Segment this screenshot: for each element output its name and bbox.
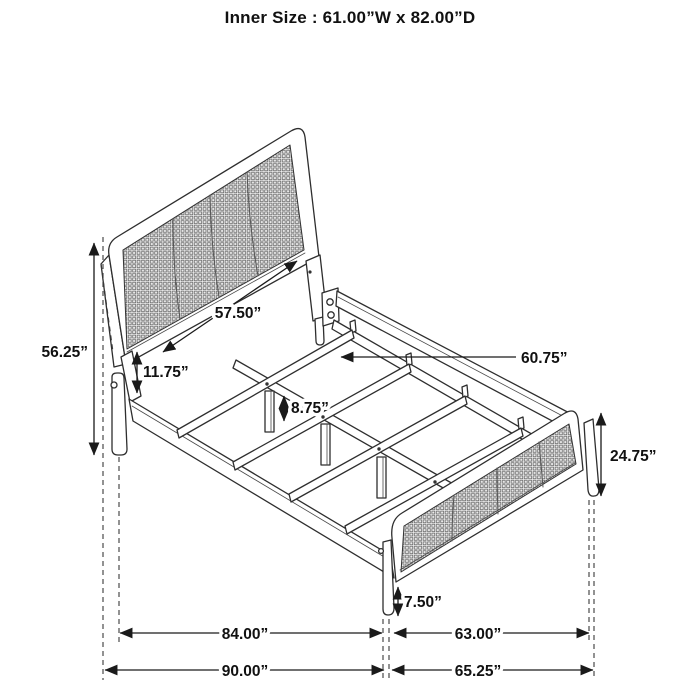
footboard-far-leg (584, 419, 599, 496)
label-inner-length: 84.00” (222, 626, 269, 643)
footboard-front-leg (383, 540, 394, 615)
label-support-leg: 8.75” (291, 400, 329, 417)
slat-screw (433, 480, 436, 483)
label-footboard-clearance: 7.50” (404, 594, 442, 611)
footboard (379, 411, 599, 615)
bracket-screw (327, 299, 333, 305)
page-title: Inner Size : 61.00”W x 82.00”D (225, 8, 476, 27)
bracket-screw (328, 312, 334, 318)
leg-pin (379, 549, 384, 554)
label-overall-length: 90.00” (222, 663, 269, 680)
support-leg (321, 424, 330, 465)
label-headboard-width: 57.50” (215, 305, 262, 322)
label-inner-foot-width: 63.00” (455, 626, 502, 643)
label-footboard-height: 24.75” (610, 448, 657, 465)
label-headboard-gap: 11.75” (143, 364, 189, 381)
bed-deck (129, 291, 577, 578)
support-leg (265, 391, 274, 432)
product-dimension-diagram: Inner Size : 61.00”W x 82.00”D (0, 0, 700, 700)
post-screw (308, 270, 311, 273)
bed-dimension-diagram: Inner Size : 61.00”W x 82.00”D (0, 0, 700, 700)
leg-pin (111, 382, 117, 388)
slat-screw (265, 382, 268, 385)
support-leg (377, 457, 386, 498)
front-side-rail (129, 399, 394, 578)
label-headboard-height: 56.25” (41, 344, 88, 361)
slat-screw (377, 447, 380, 450)
label-slat-length: 60.75” (521, 350, 568, 367)
label-overall-width: 65.25” (455, 663, 502, 680)
